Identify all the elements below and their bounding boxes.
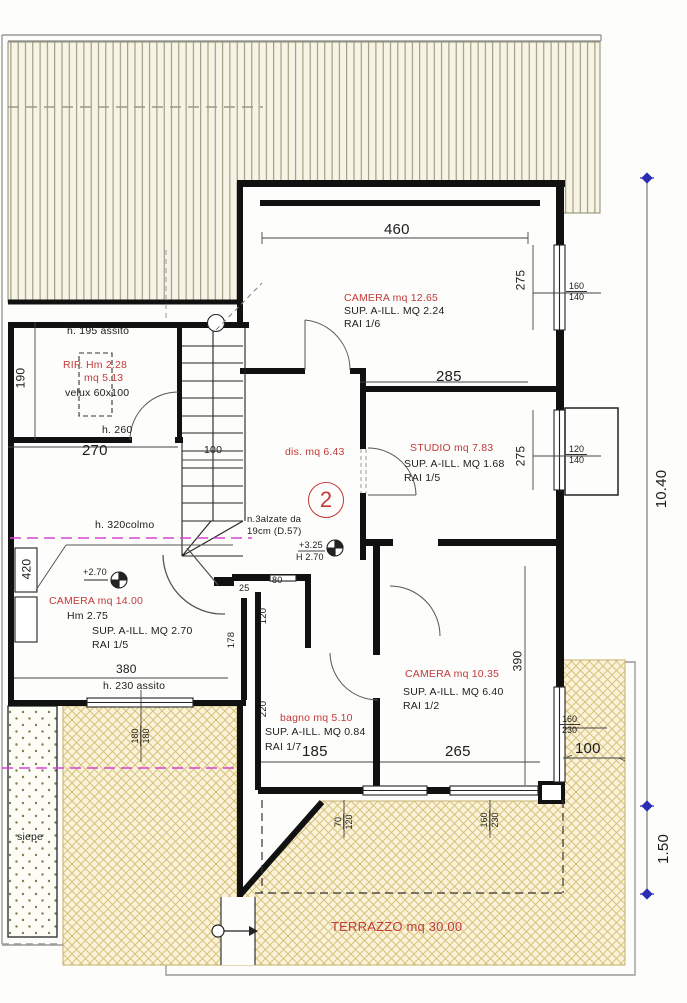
dim-180-a: 180 (130, 725, 141, 746)
room-rai-camera-ovest: RAI 1/5 (92, 640, 128, 651)
room-label-rip: RIP. Hm 2.28 (63, 360, 127, 371)
room-sup-camera-ovest: SUP. A-ILL. MQ 2.70 (92, 626, 193, 637)
dim-total-balcony: 1.50 (656, 834, 672, 864)
dim-270: 270 (82, 443, 108, 459)
dim-185: 185 (302, 744, 328, 760)
room-label-camera-ovest: CAMERA mq 14.00 (49, 596, 143, 607)
door-arcs (130, 320, 440, 700)
window-dim-height: 140 (566, 292, 587, 302)
dim-265: 265 (445, 744, 471, 760)
room-label-studio: STUDIO mq 7.83 (410, 443, 493, 454)
note-h195-assito: h. 195 assito (67, 326, 129, 337)
window-dim-height: 230 (491, 809, 501, 830)
room-sup-studio: SUP. A-ILL. MQ 1.68 (404, 459, 505, 470)
room-label-bagno: bagno mq 5.10 (280, 713, 353, 724)
dim-25: 25 (239, 584, 249, 593)
window-dim-height: 230 (559, 725, 580, 735)
room-label-terrazzo: TERRAZZO mq 30.00 (331, 920, 462, 934)
dim-390: 390 (512, 651, 525, 672)
window-dim-width: 70 (333, 814, 344, 830)
dim-80: 80 (272, 576, 282, 585)
room-rai-camera-sud: RAI 1/2 (403, 701, 439, 712)
overall-dim-line (640, 173, 654, 899)
room-label-camera-nord: CAMERA mq 12.65 (344, 293, 438, 304)
dim-100-terrace: 100 (575, 741, 601, 757)
dim-190: 190 (15, 368, 28, 389)
dim-100-stairs: 100 (204, 445, 222, 456)
window-dim-70-120: 70120 (333, 811, 355, 832)
room-rai-camera-nord: RAI 1/6 (344, 319, 380, 330)
dim-275-b: 275 (515, 446, 528, 467)
window-dim-160-230-south: 160230 (479, 809, 501, 830)
dim-180-180: 180180 (130, 725, 152, 746)
dim-285: 285 (436, 369, 462, 385)
dim-220: 220 (259, 701, 269, 717)
window-dim-160-140: 160 140 (566, 281, 587, 303)
dim-180-b: 180 (142, 725, 152, 746)
dim-420: 420 (21, 559, 34, 580)
label-siepe: siepe (17, 832, 43, 843)
room-label-rip-mq: mq 5.13 (84, 373, 123, 384)
level-plus-270: +2.70 (83, 568, 107, 577)
room-rai-bagno: RAI 1/7 (265, 742, 301, 753)
room-sup-camera-nord: SUP. A-ILL. MQ 2.24 (344, 306, 445, 317)
window-dim-height: 120 (345, 811, 355, 832)
note-h320-colmo: h. 320colmo (95, 520, 154, 531)
room-label-dis: dis. mq 6.43 (285, 447, 345, 458)
level-h-270: H 2.70 (296, 553, 324, 562)
window-dim-160-230: 160 230 (559, 714, 580, 736)
stairs-note-1: n.3alzate da (247, 515, 301, 525)
room-label-camera-sud: CAMERA mq 10.35 (405, 669, 499, 680)
room-sup-bagno: SUP. A-ILL. MQ 0.84 (265, 727, 366, 738)
floor-number-badge: 2 (308, 482, 344, 518)
dim-total-height: 10.40 (654, 470, 670, 509)
window-dim-height: 140 (566, 455, 587, 465)
dim-178: 178 (227, 632, 237, 648)
dim-460: 460 (384, 222, 410, 238)
hedge-strip (8, 706, 57, 937)
dim-120-bagno: 120 (259, 608, 269, 624)
window-dim-120-140: 120 140 (566, 444, 587, 466)
dim-275-a: 275 (515, 270, 528, 291)
note-h260: h. 260 (102, 425, 132, 436)
level-plus-325: +3.25 (299, 541, 323, 550)
window-dim-width: 160 (479, 809, 490, 830)
room-hm-camera-ovest: Hm 2.75 (67, 611, 108, 622)
note-h230-assito: h. 230 assito (103, 681, 165, 692)
note-velux: velux 60x100 (65, 388, 129, 399)
window-dim-width: 160 (566, 281, 587, 292)
room-sup-camera-sud: SUP. A-ILL. MQ 6.40 (403, 687, 504, 698)
floorplan-sheet: CAMERA mq 12.65 SUP. A-ILL. MQ 2.24 RAI … (0, 0, 687, 1003)
room-rai-studio: RAI 1/5 (404, 473, 440, 484)
window-dim-width: 120 (566, 444, 587, 455)
window-dim-width: 160 (559, 714, 580, 725)
pillar-se (540, 783, 563, 802)
dim-380: 380 (116, 663, 137, 676)
roof-hatch (8, 42, 600, 302)
stairs-note-2: 19cm (D.57) (247, 527, 301, 537)
